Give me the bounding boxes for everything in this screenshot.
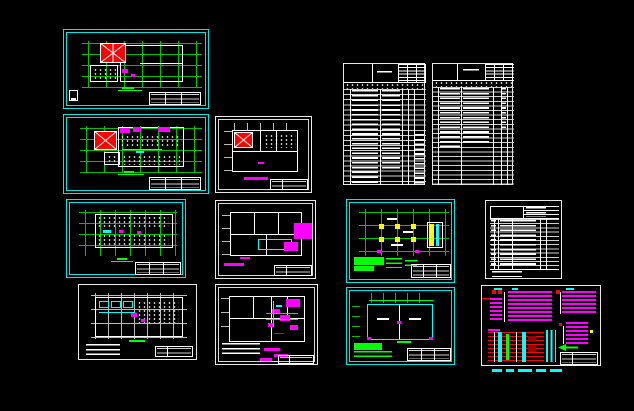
fixture-row-top: [97, 216, 169, 228]
cyan-annotation-text: [550, 369, 562, 372]
sheet-roof-plan[interactable]: [63, 29, 209, 109]
green-circuit-line: [266, 319, 298, 320]
sheet-basement-plan[interactable]: [78, 284, 197, 360]
cyan-pipe-line: [122, 149, 162, 150]
green-title-mark: [129, 340, 145, 342]
green-riser-bar: [506, 334, 509, 360]
cyan-annotation-text: [518, 369, 532, 372]
cyan-label: [276, 305, 282, 307]
cyan-detail-bar: [436, 224, 439, 246]
magenta-label: [141, 319, 145, 322]
title-block-divider: [165, 93, 166, 104]
title-block-rows: [151, 94, 199, 103]
table-column-line: [402, 89, 403, 185]
magenta-label: [119, 230, 123, 233]
dimension-ticks-top: [371, 293, 431, 303]
magenta-label: [158, 127, 170, 132]
legend-table[interactable]: [485, 200, 562, 279]
title-block-divider: [167, 347, 168, 356]
white-label: [377, 318, 389, 320]
red-mark: [274, 333, 284, 334]
mini-grid-cols: [398, 64, 426, 82]
cyan-label: [512, 288, 518, 290]
footer-text: [492, 271, 522, 277]
white-column-line: [494, 332, 495, 362]
title-block-divider: [286, 266, 287, 275]
magenta-note-text: [260, 358, 272, 361]
small-room: [104, 152, 120, 165]
cell-text-column: [491, 220, 496, 266]
green-note-text: [386, 258, 402, 268]
magenta-label: [258, 162, 264, 164]
cell-text-column: [352, 90, 378, 185]
magenta-panel-block: [566, 322, 588, 344]
red-breaker: [498, 290, 502, 294]
cell-text-column: [502, 88, 506, 128]
magenta-label: [131, 313, 137, 317]
cyan-label: [494, 288, 502, 290]
title-block: [135, 262, 181, 275]
header-column-line: [372, 64, 373, 82]
red-hatched-bay: [94, 131, 117, 150]
fixture-row-bottom: [97, 234, 169, 246]
title-block: [560, 352, 598, 365]
magenta-label: [367, 337, 371, 340]
table-column-line: [438, 87, 439, 185]
drawing-title-underline: [118, 174, 144, 175]
cyan-equipment-block: [123, 301, 133, 308]
magenta-wiring-note: [290, 325, 298, 330]
sheet-equipment-plan-1[interactable]: [63, 114, 209, 194]
green-title-mark: [397, 341, 411, 343]
title-block-divider: [421, 349, 422, 360]
title-block-divider: [289, 356, 290, 363]
table-column-line: [507, 87, 508, 185]
green-circuit-line: [266, 313, 298, 314]
magenta-label: [429, 337, 433, 340]
interior-wall: [254, 212, 255, 234]
interior-wall: [278, 212, 279, 234]
red-hatched-roof: [234, 132, 253, 148]
cell-text-column: [463, 88, 489, 143]
red-breaker: [559, 323, 562, 326]
table-column-line: [498, 219, 499, 269]
magenta-label: [488, 329, 500, 331]
cell-text-column: [415, 134, 424, 184]
fixture-hatch: [93, 68, 116, 80]
title-block-rows: [409, 350, 449, 359]
magenta-label: [415, 250, 419, 253]
cad-viewport[interactable]: { "app": { "name": "CAD multi-sheet draw…: [0, 0, 634, 411]
schedule-table-2[interactable]: [432, 63, 513, 185]
title-block: [407, 348, 451, 361]
dimension-line-top: [369, 300, 433, 301]
title-block-divider: [149, 263, 150, 274]
magenta-zone: [284, 242, 298, 251]
white-bus-bar: [560, 292, 561, 314]
magenta-wiring-note: [280, 315, 290, 321]
room-annotations: [264, 134, 296, 148]
title-block-rows: [562, 354, 596, 363]
magenta-panel-block: [490, 298, 502, 320]
header-text: [377, 71, 392, 75]
dark-red-block: [528, 346, 536, 352]
interior-wall: [260, 130, 261, 151]
table-column-line: [380, 89, 381, 185]
stair-room: [90, 65, 118, 82]
white-label: [409, 318, 421, 320]
yellow-dot: [590, 330, 593, 333]
table-column-line: [493, 87, 494, 185]
magenta-label: [240, 257, 250, 259]
title-block-rows: [413, 266, 449, 276]
red-breaker: [492, 290, 496, 294]
sheet-equipment-plan-2[interactable]: [66, 199, 186, 278]
magenta-note-text: [224, 263, 244, 266]
title-block-divider: [165, 178, 166, 189]
title-block-divider: [181, 178, 182, 189]
yellow-column: [395, 237, 400, 242]
drawing-title-text: [124, 171, 134, 173]
green-note-block: [354, 257, 384, 265]
dimension-ticks-left: [352, 306, 360, 338]
yellow-column: [379, 224, 384, 229]
green-arrow: [558, 344, 578, 351]
header-column-line: [457, 64, 458, 80]
table-column-line: [546, 219, 547, 269]
title-block: [411, 264, 451, 278]
cyan-striped-column: [546, 330, 556, 362]
fixture-hatch: [107, 155, 118, 163]
cyan-riser-bar: [498, 332, 502, 362]
green-note-block: [354, 343, 382, 350]
cell-text-column: [440, 88, 460, 150]
schedule-table-1[interactable]: [343, 63, 425, 185]
title-block-divider: [181, 93, 182, 104]
title-block: [274, 265, 312, 276]
title-block-divider: [163, 263, 164, 274]
header-text: [526, 207, 546, 217]
cyan-riser-bar: [522, 332, 526, 362]
white-bus-bar: [504, 292, 505, 322]
dimension-ticks-left: [224, 131, 232, 171]
title-block: [149, 177, 201, 190]
yellow-column: [411, 224, 416, 229]
magenta-label: [133, 127, 141, 132]
magenta-label: [131, 74, 135, 77]
symbol-mark: [71, 98, 76, 100]
white-label: [387, 218, 397, 220]
table-column-line: [540, 219, 541, 269]
notes-text: [222, 343, 260, 356]
equipment-row-top: [120, 135, 182, 147]
sheet-power-plan[interactable]: [215, 200, 316, 279]
title-block: [270, 179, 308, 190]
magenta-note-text: [264, 348, 280, 351]
magenta-label: [122, 69, 128, 73]
title-block-rows: [276, 267, 310, 274]
title-block: [149, 92, 201, 105]
equipment-row-bottom: [122, 155, 180, 165]
dimension-ticks-left: [221, 298, 229, 340]
title-block-rows: [157, 348, 191, 355]
title-block-divider: [282, 180, 283, 189]
dark-red-block: [528, 336, 536, 342]
cyan-equipment-block: [111, 301, 121, 308]
title-block: [278, 355, 314, 364]
magenta-panel-block: [508, 291, 552, 323]
magenta-label: [377, 250, 381, 253]
drawing-title-underline: [111, 261, 133, 262]
cyan-label: [566, 288, 574, 290]
drawing-title-text: [122, 87, 134, 89]
interior-wall: [232, 151, 298, 152]
magenta-label: [397, 321, 401, 324]
cyan-equipment-block: [99, 301, 109, 308]
drawing-title-underline: [118, 90, 142, 91]
header-cell: [490, 206, 524, 219]
footer-divider: [490, 269, 559, 270]
cyan-label: [136, 151, 144, 153]
cyan-annotation-text: [536, 369, 546, 372]
white-column-line: [516, 332, 517, 362]
yellow-column: [379, 237, 384, 242]
magenta-panel-block: [562, 291, 596, 315]
white-label: [391, 244, 403, 246]
cyan-riser-line: [273, 301, 274, 327]
title-block-divider: [436, 265, 437, 277]
cell-text-column: [500, 220, 536, 266]
yellow-column: [411, 237, 416, 242]
magenta-wiring-note: [286, 299, 300, 307]
white-bus-bar: [563, 326, 564, 344]
mini-grid-cols: [485, 64, 514, 80]
sheet-distribution-diagram[interactable]: [481, 285, 601, 366]
sheet-room-outline-plan[interactable]: [346, 287, 455, 365]
cyan-annotation-text: [492, 369, 502, 372]
dimension-ticks-left: [222, 215, 230, 255]
title-block-rows: [151, 179, 199, 188]
sheet-column-grid-plan[interactable]: [346, 199, 455, 283]
title-block-rows: [280, 357, 312, 362]
magenta-label: [137, 231, 141, 234]
green-note-block: [354, 266, 374, 271]
white-label: [403, 231, 413, 233]
red-hatched-skylight: [100, 43, 126, 63]
cell-text-column: [382, 90, 400, 170]
green-note-text: [354, 351, 392, 360]
notes-text: [86, 344, 120, 355]
magenta-label: [120, 128, 130, 133]
sheet-small-roof-plan[interactable]: [215, 116, 312, 193]
drawing-title-text: [117, 258, 127, 260]
interior-wall: [253, 296, 254, 318]
interior-wall: [140, 63, 183, 64]
title-block-rows: [272, 181, 306, 188]
title-block: [155, 346, 193, 357]
table-column-line: [408, 89, 409, 185]
title-block-divider: [572, 353, 573, 364]
magenta-note-text: [244, 177, 268, 180]
sheet-wiring-plan[interactable]: [215, 284, 318, 365]
cyan-pipe-line: [99, 312, 135, 313]
title-block-divider: [423, 265, 424, 277]
cyan-annotation-text: [506, 369, 514, 372]
cyan-label: [103, 230, 111, 233]
table-column-line: [461, 87, 462, 185]
header-text: [463, 69, 479, 73]
yellow-detail-bar: [429, 224, 434, 246]
yellow-column: [395, 224, 400, 229]
table-column-line: [350, 89, 351, 185]
title-block-divider: [434, 349, 435, 360]
title-block-rows: [137, 264, 179, 273]
magenta-zone: [294, 223, 312, 239]
